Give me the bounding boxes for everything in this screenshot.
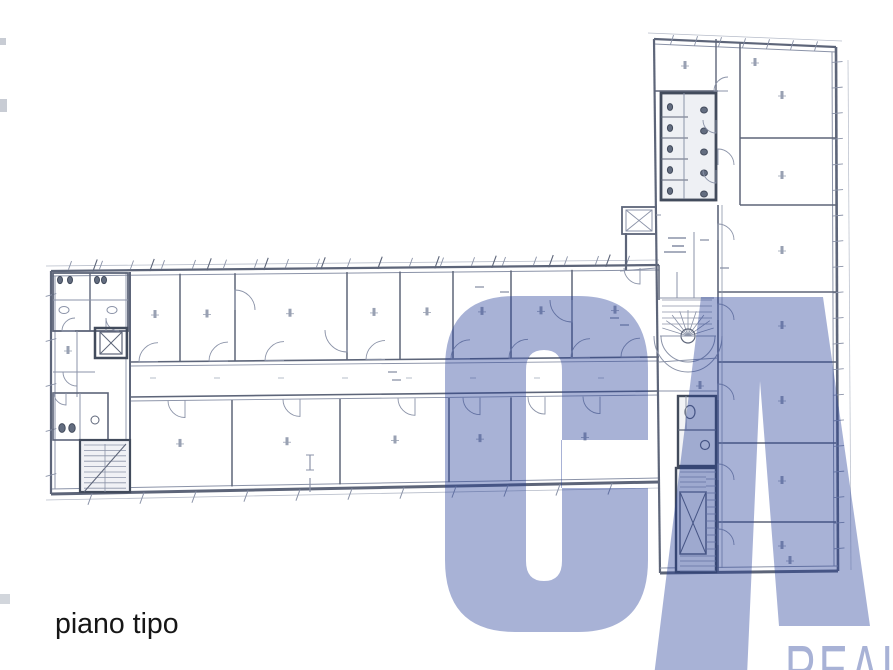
svg-text:piano tipo: piano tipo	[55, 608, 179, 640]
svg-text:REAL: REAL	[785, 631, 893, 670]
